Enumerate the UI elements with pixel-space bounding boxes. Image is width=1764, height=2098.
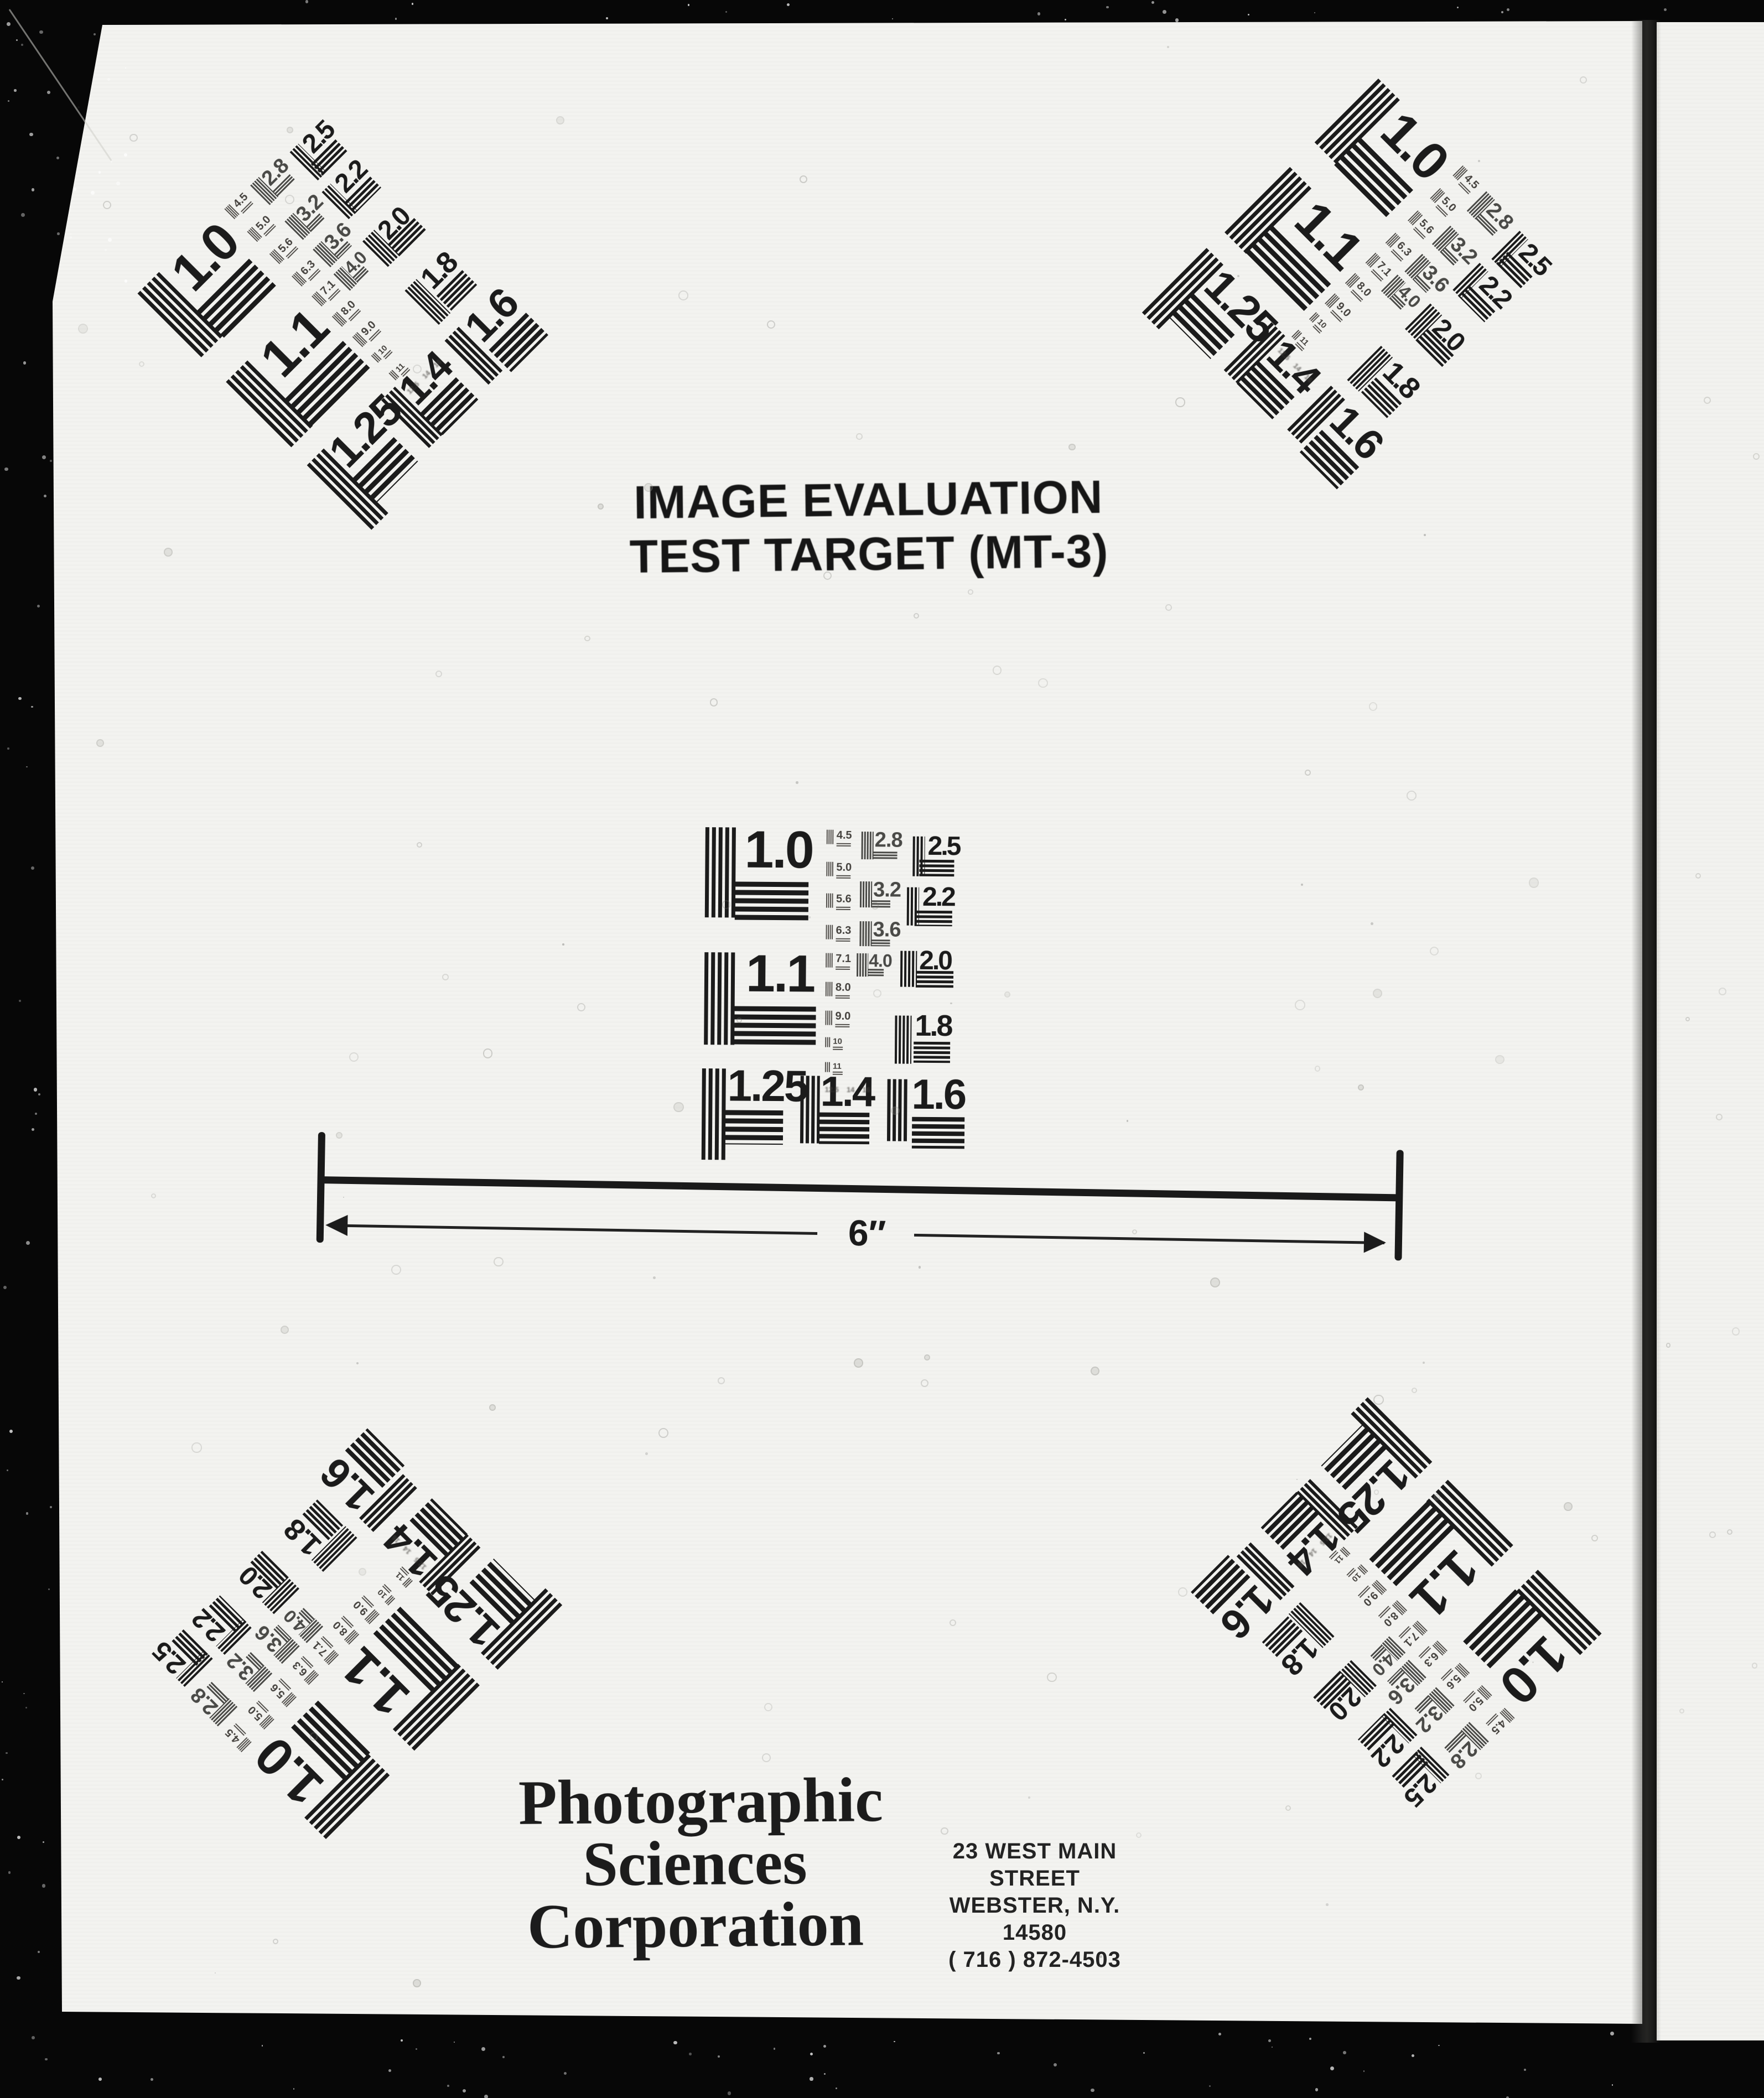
scan-noise [2, 1681, 3, 1682]
ladder-bars [836, 906, 850, 910]
scan-noise [105, 249, 107, 251]
scan-noise [1501, 11, 1503, 13]
scan-noise [1309, 2038, 1311, 2040]
ladder-bars [825, 1011, 833, 1025]
scan-noise [767, 320, 775, 329]
scan-noise [96, 739, 104, 747]
scan-noise [74, 188, 77, 191]
scan-noise [1151, 1, 1154, 4]
resolution-target-center: 1.0 1.1 1.25 1.4 1.6 1.8 2.0 2.2 2.5 2.8… [694, 799, 1015, 1161]
scan-noise [941, 1827, 948, 1835]
scan-noise [116, 181, 120, 185]
scan-noise [42, 1884, 46, 1888]
scan-noise [489, 1404, 496, 1411]
scan-noise [1175, 397, 1185, 407]
scan-noise [463, 2089, 466, 2092]
scan-noise [1371, 922, 1373, 925]
ladder-label: 8.0 [836, 982, 851, 993]
scan-noise [57, 232, 59, 235]
scan-noise [111, 161, 112, 162]
ladder-label: 14 [1291, 361, 1303, 373]
scan-noise [293, 2088, 294, 2089]
scan-noise [718, 2055, 720, 2058]
ladder-bars [836, 937, 850, 942]
scan-noise [810, 2053, 813, 2055]
scan-noise [1028, 1796, 1030, 1798]
scan-noise [494, 1257, 504, 1267]
scan-noise [26, 1512, 29, 1515]
scan-noise [416, 2048, 417, 2050]
scan-noise [1004, 991, 1010, 998]
scan-noise [285, 195, 294, 204]
scan-noise [1507, 8, 1509, 11]
ladder-step: 11 [825, 1062, 843, 1075]
scan-noise [77, 157, 79, 158]
scan-noise [98, 2078, 102, 2081]
ladder-step: 9.0 [825, 1011, 850, 1027]
scan-noise [481, 2047, 485, 2051]
scan-noise [891, 1107, 899, 1115]
scan-noise [678, 290, 688, 300]
scan-noise [564, 2072, 567, 2075]
ladder-step: 4.5 [827, 830, 852, 847]
scan-noise [1268, 2039, 1271, 2042]
scan-noise [892, 18, 893, 19]
ladder-bars [826, 925, 834, 939]
scan-noise [1343, 2051, 1346, 2054]
scan-noise [2, 1779, 3, 1780]
scan-noise [1685, 1017, 1690, 1021]
scan-noise [673, 2041, 677, 2045]
scan-noise [1716, 1114, 1723, 1120]
scan-noise [993, 666, 1002, 674]
scan-noise [1412, 2054, 1414, 2057]
ladder-bars [836, 874, 850, 879]
ladder-label: 5.6 [836, 894, 852, 905]
scan-noise [35, 1113, 37, 1115]
ladder-label: 12.5 [825, 1086, 839, 1094]
ladder-label: 5.0 [836, 862, 852, 873]
scan-noise [305, 0, 309, 3]
scan-noise [94, 33, 96, 35]
scan-noise [281, 1326, 289, 1334]
scan-noise [787, 3, 790, 6]
scan-noise [809, 916, 811, 918]
scan-noise [774, 2048, 775, 2049]
scan-noise [23, 1693, 24, 1694]
scan-noise [710, 698, 718, 706]
scan-noise [1068, 444, 1075, 450]
scan-noise [722, 900, 730, 908]
scan-noise [1664, 8, 1667, 11]
scale-reference-line [324, 1176, 1395, 1201]
scan-noise [1732, 1327, 1740, 1335]
scan-noise [1529, 877, 1539, 887]
scan-noise [1106, 6, 1109, 9]
scan-noise [1037, 12, 1040, 15]
scan-noise [1209, 2085, 1211, 2087]
scan-noise [725, 11, 727, 13]
scan-noise [91, 191, 95, 195]
scale-arrow-line [914, 1234, 1384, 1244]
scan-noise [9, 1430, 13, 1433]
scan-noise [854, 1358, 863, 1368]
scan-noise [1248, 14, 1249, 15]
scan-noise [78, 324, 88, 334]
scan-noise [38, 1951, 40, 1953]
scan-noise [44, 495, 46, 497]
scan-noise [645, 1452, 648, 1455]
scan-noise [968, 589, 973, 594]
scan-noise [1709, 1531, 1716, 1538]
scan-noise [1580, 76, 1587, 84]
scan-noise [151, 2078, 153, 2081]
scan-noise [1047, 1673, 1057, 1682]
scan-noise [310, 1732, 318, 1740]
scan-noise [50, 1506, 52, 1508]
density-step-ladder: 4.5 5.0 5.6 6.3 7.1 8.0 9.0 10 11 12.514… [824, 824, 887, 1102]
scan-noise [1178, 1587, 1187, 1597]
scan-noise [1564, 1502, 1573, 1511]
scan-noise [39, 30, 43, 34]
scan-noise [914, 613, 919, 619]
scan-noise [1506, 2096, 1509, 2098]
address-line-2: WEBSTER, N.Y. 14580 [916, 1892, 1154, 1946]
scanned-test-target-page: 1.0 1.1 1.25 1.4 1.6 1.8 2.0 2.2 2.5 2.8… [0, 0, 1764, 2098]
scan-noise [98, 171, 101, 174]
scan-noise [1065, 19, 1066, 20]
ladder-label: 7.1 [836, 953, 851, 964]
scan-noise [658, 1428, 668, 1438]
scan-noise [139, 361, 144, 367]
scan-noise [26, 1241, 30, 1245]
ladder-label: 16 [432, 357, 443, 369]
scan-noise [1369, 702, 1377, 710]
scan-noise [45, 2058, 48, 2061]
scan-noise [483, 1048, 493, 1058]
company-address: 23 WEST MAIN STREET WEBSTER, N.Y. 14580 … [916, 1838, 1154, 1974]
scan-noise [17, 1976, 20, 1980]
scan-noise [796, 781, 798, 784]
scan-noise [37, 605, 40, 607]
scan-noise [1666, 1343, 1671, 1348]
scan-noise [1314, 12, 1315, 13]
company-wordmark: Photographic Sciences Corporation [518, 1769, 872, 1958]
scan-noise [1295, 1000, 1305, 1010]
scan-noise [8, 1871, 11, 1874]
scan-noise [894, 2041, 895, 2042]
scan-noise [43, 1841, 44, 1843]
ladder-bars [826, 982, 833, 996]
scan-noise [810, 2077, 813, 2080]
scan-noise [262, 2045, 263, 2046]
scan-noise [412, 3, 414, 5]
scan-noise [1423, 1362, 1425, 1364]
scan-noise [1163, 10, 1166, 13]
scan-noise [1704, 397, 1711, 404]
scan-noise [17, 1836, 20, 1839]
ladder-label: 9.0 [835, 1011, 850, 1022]
company-line-1: Photographic [518, 1769, 871, 1834]
scan-noise [502, 2056, 505, 2058]
scan-noise [32, 188, 34, 191]
scan-noise [873, 989, 881, 998]
scan-noise [484, 2095, 488, 2098]
ladder-step: 8.0 [826, 982, 851, 999]
scan-noise [997, 2052, 999, 2054]
scale-length-label: 6″ [822, 1211, 911, 1255]
ladder-label: 14 [1307, 1547, 1319, 1559]
scan-noise [1591, 1535, 1598, 1541]
scan-noise [1374, 1489, 1379, 1495]
scan-noise [388, 2069, 391, 2072]
scan-noise [8, 100, 9, 102]
next-page-edge [1657, 22, 1764, 2040]
scan-noise [26, 766, 27, 767]
scan-noise [1175, 18, 1179, 22]
scan-noise [356, 1362, 359, 1364]
scan-noise [6, 1752, 8, 1754]
scan-noise [1315, 1066, 1321, 1072]
scan-noise [1373, 989, 1382, 998]
scan-noise [1210, 1278, 1220, 1287]
scan-noise [32, 1128, 34, 1131]
ladder-bars [833, 1072, 843, 1075]
scan-noise [18, 697, 21, 700]
scan-noise [16, 39, 18, 41]
scan-noise [718, 1377, 725, 1384]
scan-noise [562, 943, 564, 946]
ladder-bars [826, 953, 833, 968]
arrowhead-right-icon [1364, 1232, 1387, 1253]
scan-noise [14, 89, 16, 91]
scan-noise [31, 866, 34, 870]
scan-noise [164, 548, 173, 557]
ladder-tiny-steps: 12.51416 [825, 1086, 870, 1094]
company-line-3: Corporation [520, 1893, 872, 1958]
ladder-bars [835, 1023, 849, 1027]
ladder-step: 10 [825, 1037, 843, 1050]
arrowhead-left-icon [325, 1214, 348, 1236]
ladder-bars [836, 994, 850, 999]
scan-noise [1301, 884, 1303, 886]
scan-noise [836, 2087, 837, 2089]
title-line-1: IMAGE EVALUATION [619, 470, 1118, 530]
scan-noise [191, 1442, 201, 1452]
ladder-step: 6.3 [826, 925, 851, 942]
scan-noise [1430, 947, 1439, 955]
scan-noise [1272, 2047, 1273, 2048]
scan-noise [1478, 160, 1480, 162]
ladder-label: 11 [833, 1062, 843, 1071]
resolution-test-pattern: 1.0 1.1 1.25 1.4 1.6 1.8 2.0 2.2 2.5 2.8… [694, 799, 1015, 1161]
scan-noise [1326, 1903, 1328, 1905]
scan-noise [463, 343, 464, 345]
scan-noise [1091, 2089, 1094, 2092]
scan-noise [1679, 1708, 1684, 1713]
scan-noise [1524, 2069, 1527, 2071]
scan-noise [7, 1469, 8, 1471]
scan-noise [689, 2053, 692, 2055]
scan-noise [1136, 1832, 1142, 1838]
scan-noise [23, 361, 26, 364]
scan-noise [34, 1088, 38, 1092]
scan-noise [4, 468, 8, 471]
scale-bar: 6″ [316, 1132, 1404, 1282]
scan-noise [1091, 1367, 1099, 1375]
scan-noise [454, 2042, 455, 2043]
scan-noise [48, 1588, 50, 1590]
ladder-label: 14 [421, 368, 432, 380]
scan-noise [728, 2091, 731, 2095]
scan-noise [1315, 2088, 1319, 2091]
scan-noise [1285, 1805, 1291, 1811]
scan-noise [21, 44, 23, 46]
ladder-label: 4.5 [837, 830, 852, 841]
scan-noise [1237, 275, 1239, 277]
scan-noise [413, 1979, 421, 1987]
scan-noise [1165, 604, 1172, 611]
scan-noise [25, 1707, 27, 1708]
scan-noise [1143, 2052, 1145, 2054]
scan-noise [800, 175, 807, 183]
scan-noise [42, 455, 46, 459]
scan-noise [56, 157, 59, 159]
scan-noise [606, 17, 609, 20]
scan-noise [1305, 770, 1311, 776]
scan-noise [29, 133, 33, 136]
scan-noise [395, 18, 397, 20]
ladder-bars [837, 842, 851, 847]
scan-noise [871, 902, 879, 910]
scan-noise [1434, 1494, 1440, 1500]
scan-noise [108, 238, 112, 242]
scan-noise [1351, 1674, 1360, 1683]
scan-noise [1753, 453, 1760, 460]
scan-noise [155, 308, 157, 309]
scan-noise [1132, 1229, 1137, 1234]
scan-noise [1054, 2063, 1057, 2067]
page-title: IMAGE EVALUATION TEST TARGET (MT-3) [619, 470, 1118, 584]
ladder-label: 14 [401, 1545, 413, 1556]
scan-noise [50, 460, 52, 462]
scan-noise [688, 4, 689, 6]
ladder-step: 5.0 [826, 862, 852, 879]
ladder-bars [826, 894, 834, 908]
ladder-bars [826, 862, 834, 876]
scan-noise [401, 2039, 403, 2042]
scan-noise [287, 127, 293, 133]
scan-noise [1612, 2084, 1613, 2085]
scan-noise [435, 671, 442, 677]
ladder-bars [833, 1047, 843, 1050]
scale-end-tick-left [317, 1132, 325, 1243]
scan-noise [1457, 7, 1459, 8]
scan-noise [584, 636, 590, 641]
ladder-label: 16 [1296, 1558, 1308, 1570]
address-line-1: 23 WEST MAIN STREET [916, 1838, 1154, 1892]
scan-noise [47, 91, 50, 94]
ladder-step: 5.6 [826, 894, 852, 910]
scan-noise [447, 2085, 449, 2087]
scan-noise [762, 1753, 771, 1762]
scan-noise [31, 706, 33, 708]
company-line-2: Sciences [519, 1831, 871, 1896]
scan-noise [7, 747, 9, 749]
ladder-step: 7.1 [826, 953, 851, 970]
ladder-bars [825, 1037, 831, 1047]
scan-noise [1330, 2066, 1334, 2070]
ladder-bars [836, 965, 850, 970]
ladder-label: 10 [833, 1037, 843, 1046]
scan-noise [3, 1286, 7, 1289]
title-line-2: TEST TARGET (MT-3) [620, 524, 1118, 584]
scan-noise [823, 2045, 826, 2048]
scan-noise [1438, 2045, 1439, 2046]
ladder-label: 14 [847, 1086, 855, 1094]
scan-noise [124, 279, 128, 283]
scan-noise [1218, 2033, 1221, 2035]
scan-noise [7, 22, 11, 26]
ladder-label: 16 [1303, 373, 1314, 385]
scan-noise [77, 106, 80, 108]
ladder-label: 16 [390, 1534, 402, 1545]
ladder-label: 16 [862, 1086, 870, 1094]
scan-noise [1719, 988, 1726, 995]
ladder-bars [827, 830, 834, 844]
scale-arrow-line [333, 1224, 817, 1235]
scan-noise [19, 1000, 21, 1002]
scan-noise [21, 213, 25, 217]
scan-noise [336, 1132, 343, 1139]
scan-noise [32, 2036, 35, 2039]
ladder-label: 6.3 [836, 925, 852, 936]
scan-noise [856, 433, 863, 440]
scan-noise [442, 974, 449, 980]
scan-noise [38, 1093, 40, 1095]
address-line-3: ( 716 ) 872-4503 [916, 1946, 1154, 1974]
scan-noise [1038, 678, 1047, 688]
scan-noise [736, 1017, 742, 1023]
ladder-bars [825, 1062, 831, 1072]
scan-noise [1363, 2070, 1365, 2072]
scan-noise [824, 2073, 826, 2075]
page-seam-shadow [1631, 20, 1661, 2043]
scan-noise [1610, 2032, 1614, 2035]
